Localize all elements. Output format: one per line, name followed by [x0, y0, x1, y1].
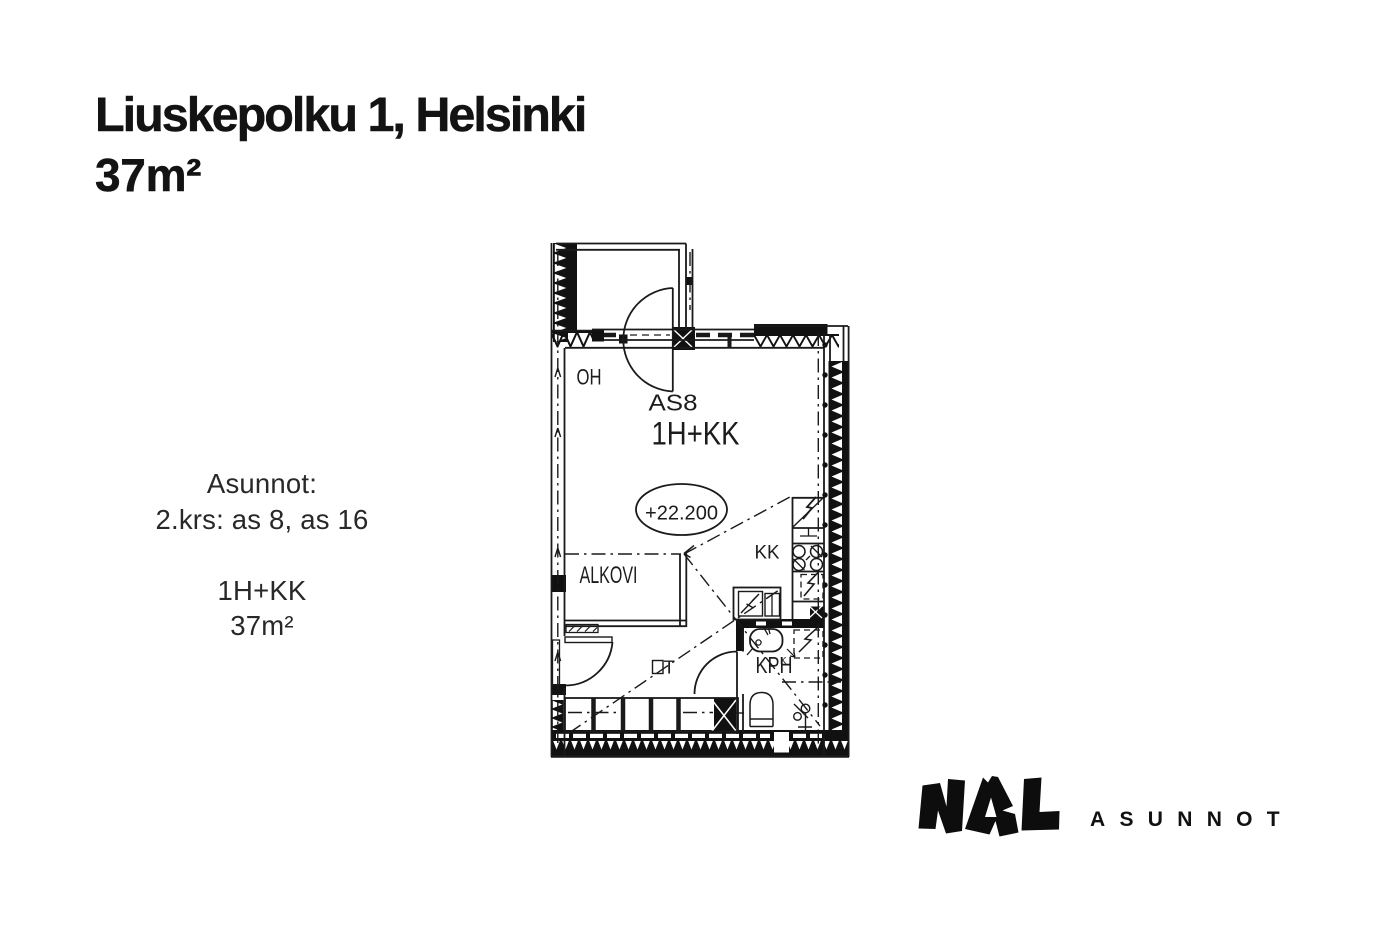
- svg-text:ASUNNOT: ASUNNOT: [1090, 808, 1294, 831]
